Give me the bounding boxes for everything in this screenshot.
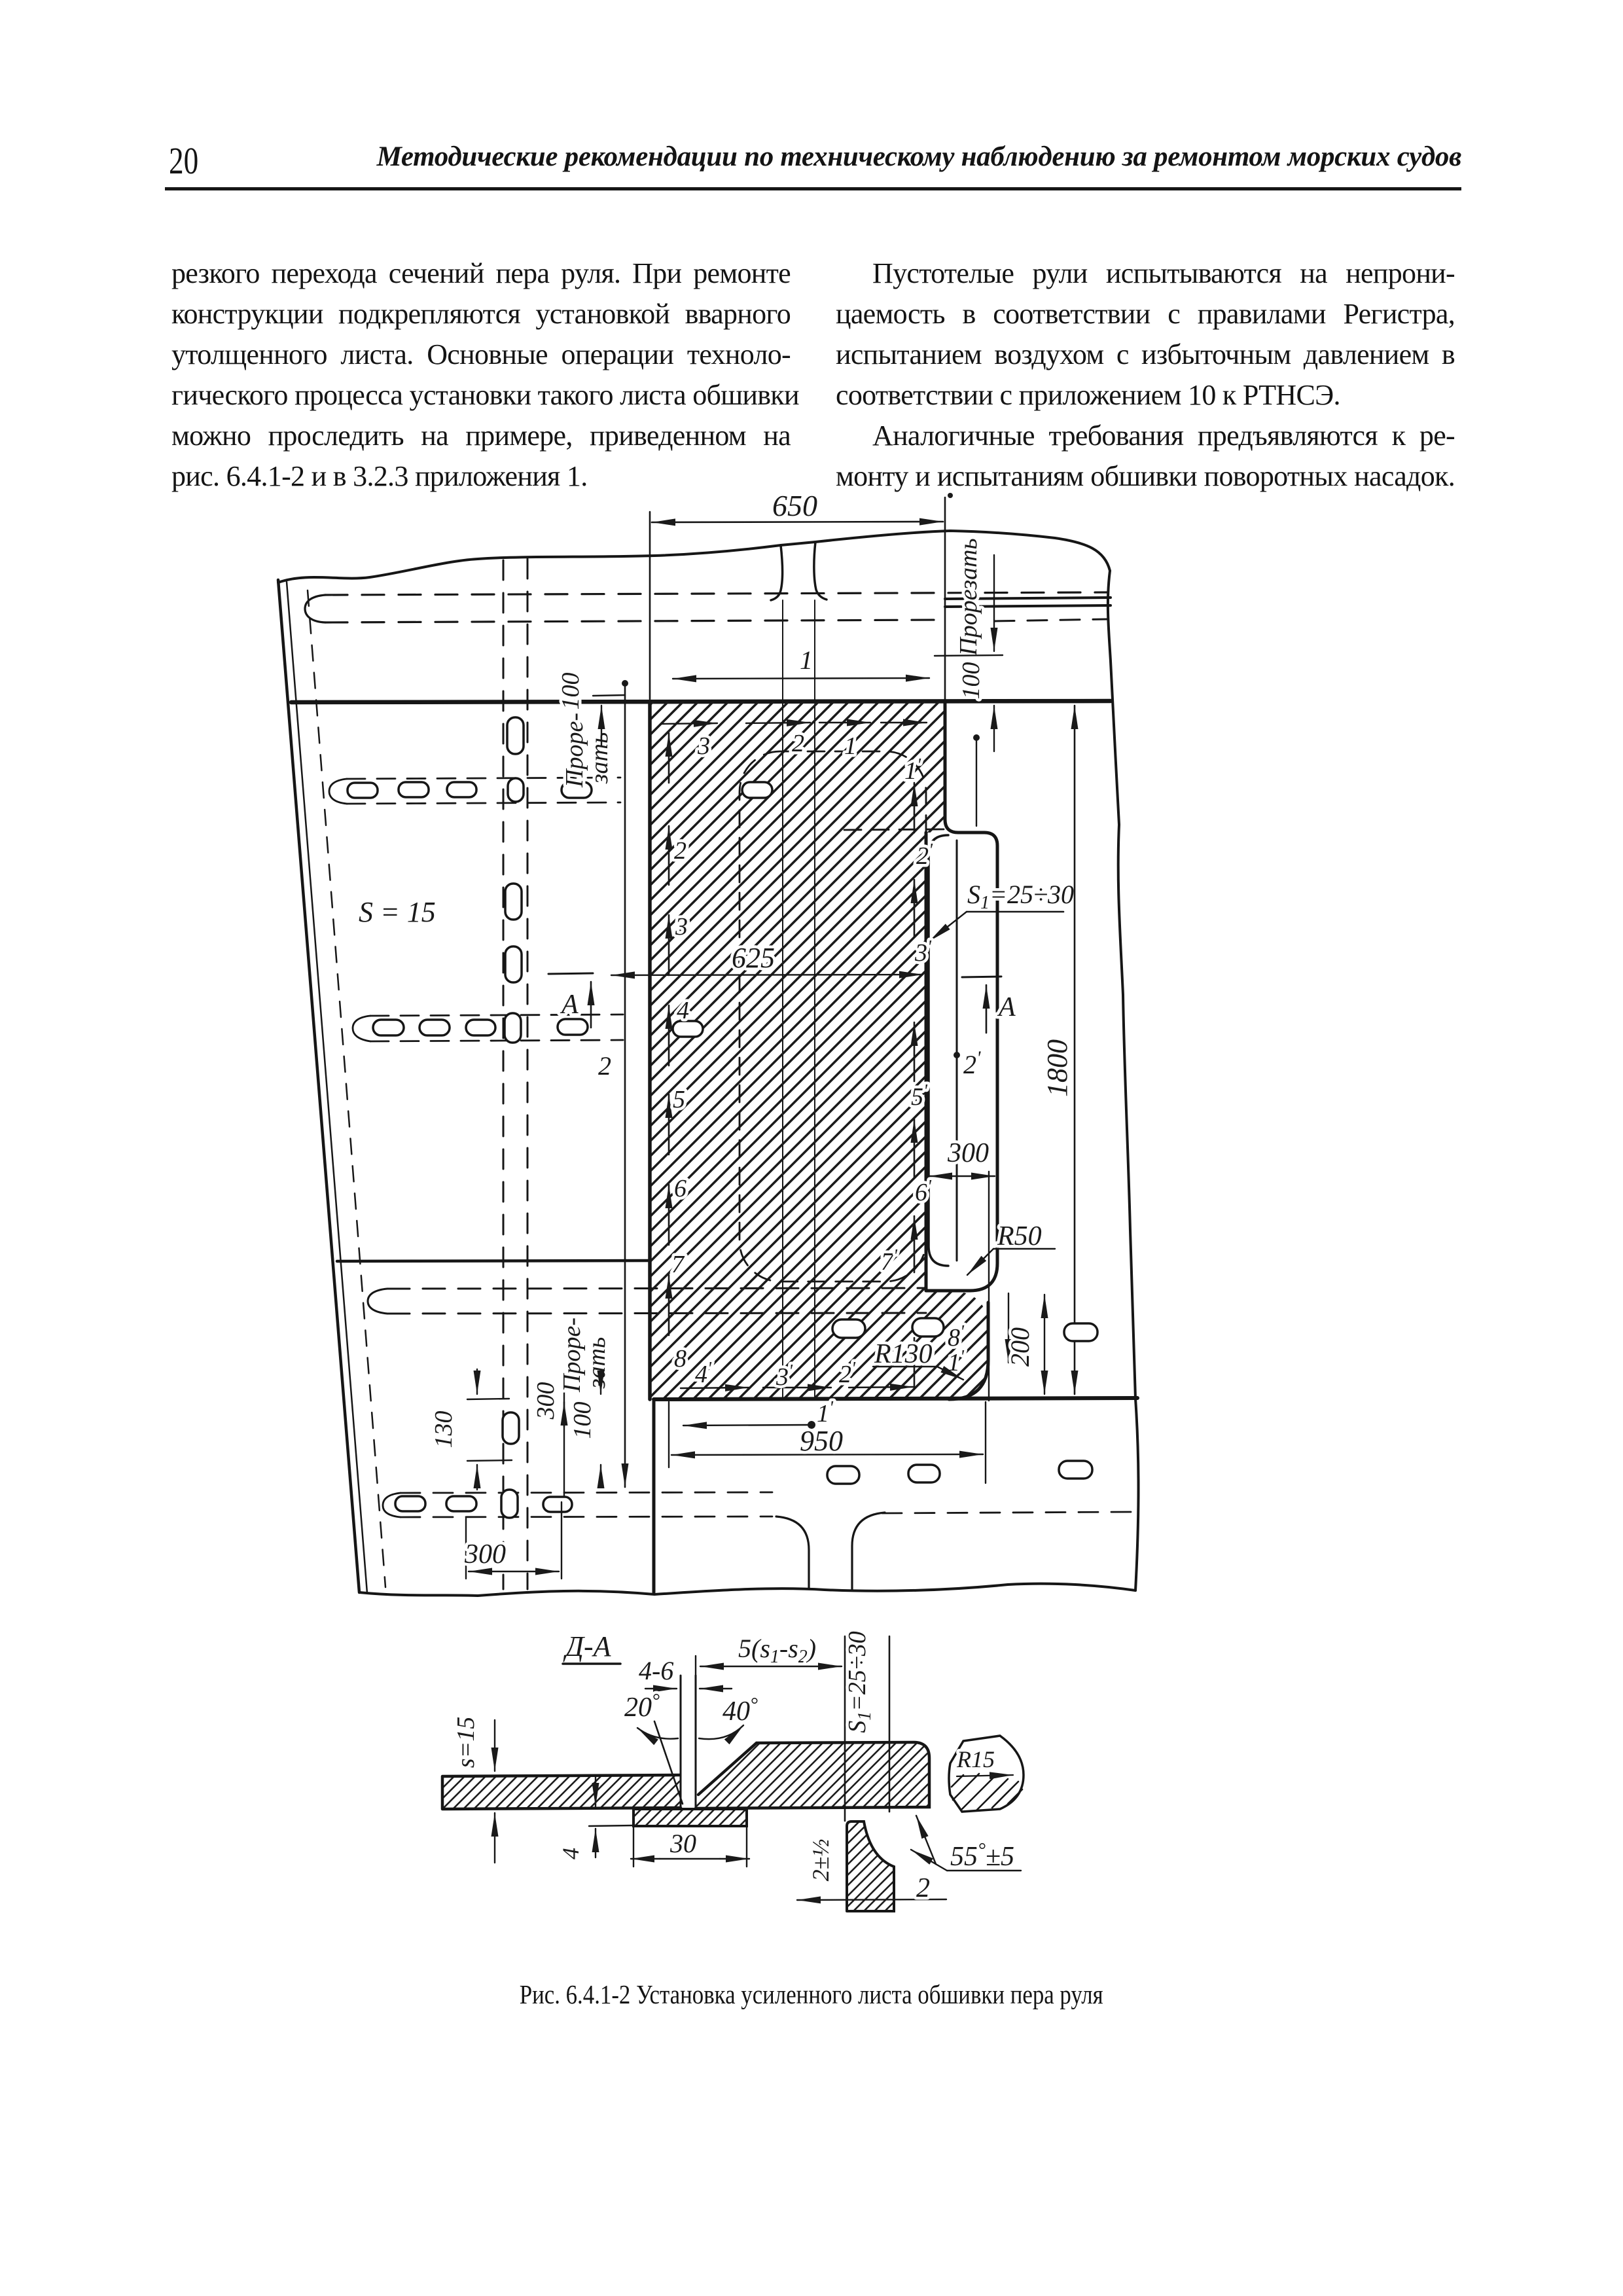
svg-text:2: 2 [792,730,804,757]
svg-text:1: 1 [844,732,857,760]
svg-text:S1=25÷30: S1=25÷30 [844,1631,875,1733]
svg-text:Проре-: Проре- [558,1318,586,1393]
svg-text:1': 1' [817,1398,834,1427]
svg-text:40°: 40° [722,1694,758,1727]
svg-text:7: 7 [671,1251,685,1278]
svg-text:2: 2 [674,837,687,865]
svg-text:650: 650 [772,489,817,522]
svg-text:100: 100 [557,673,584,710]
svg-text:Д-А: Д-А [563,1630,612,1662]
svg-text:20°: 20° [624,1690,660,1723]
svg-text:100: 100 [957,662,985,700]
svg-text:3: 3 [675,913,688,941]
svg-text:6: 6 [674,1175,687,1202]
svg-text:950: 950 [800,1425,843,1457]
svg-text:625: 625 [732,942,775,974]
svg-text:A: A [997,992,1016,1022]
svg-text:1800: 1800 [1041,1039,1073,1097]
svg-text:55°±5: 55°±5 [950,1839,1014,1872]
svg-text:4-6: 4-6 [639,1656,673,1685]
svg-text:R15: R15 [956,1746,995,1772]
svg-text:3: 3 [697,732,710,760]
svg-text:R50: R50 [997,1221,1042,1251]
svg-text:R130: R130 [874,1339,933,1369]
svg-text:5: 5 [673,1086,685,1113]
svg-text:300: 300 [464,1539,506,1570]
svg-text:4: 4 [677,997,689,1024]
svg-text:зать: зать [586,732,613,785]
svg-text:300: 300 [947,1138,989,1168]
svg-text:Проре-: Проре- [561,713,588,788]
svg-text:2: 2 [598,1051,611,1081]
svg-text:100: 100 [569,1402,596,1439]
svg-text:Прорезать: Прорезать [955,538,982,656]
svg-text:4: 4 [558,1848,584,1859]
svg-text:2±½: 2±½ [808,1839,834,1882]
svg-text:200: 200 [1005,1327,1035,1367]
svg-text:A: A [560,990,579,1020]
svg-text:30: 30 [669,1829,696,1858]
svg-text:зать: зать [583,1337,611,1390]
svg-text:8: 8 [674,1345,687,1372]
svg-text:1: 1 [800,645,813,675]
svg-text:2: 2 [916,1873,930,1903]
svg-text:5(s1-s2): 5(s1-s2) [738,1634,816,1667]
svg-text:s=15: s=15 [452,1717,480,1768]
svg-text:130: 130 [430,1411,457,1448]
svg-text:S = 15: S = 15 [359,896,436,928]
svg-text:300: 300 [532,1382,560,1420]
